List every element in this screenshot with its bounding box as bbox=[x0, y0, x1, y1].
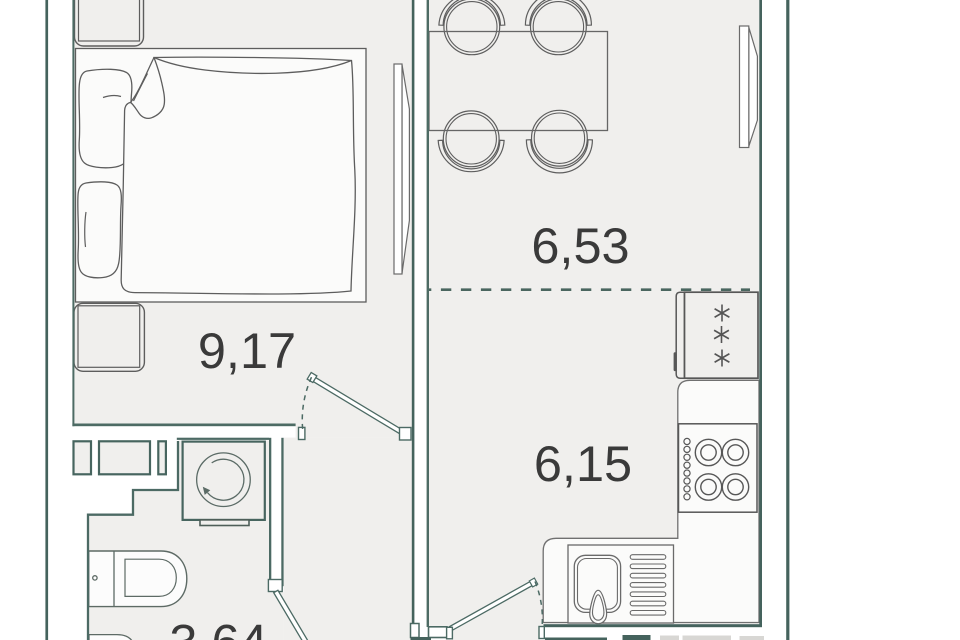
svg-text:6,53: 6,53 bbox=[531, 217, 629, 274]
svg-text:6,15: 6,15 bbox=[534, 435, 632, 492]
svg-text:9,17: 9,17 bbox=[198, 322, 296, 379]
svg-text:3,64: 3,64 bbox=[169, 614, 267, 640]
